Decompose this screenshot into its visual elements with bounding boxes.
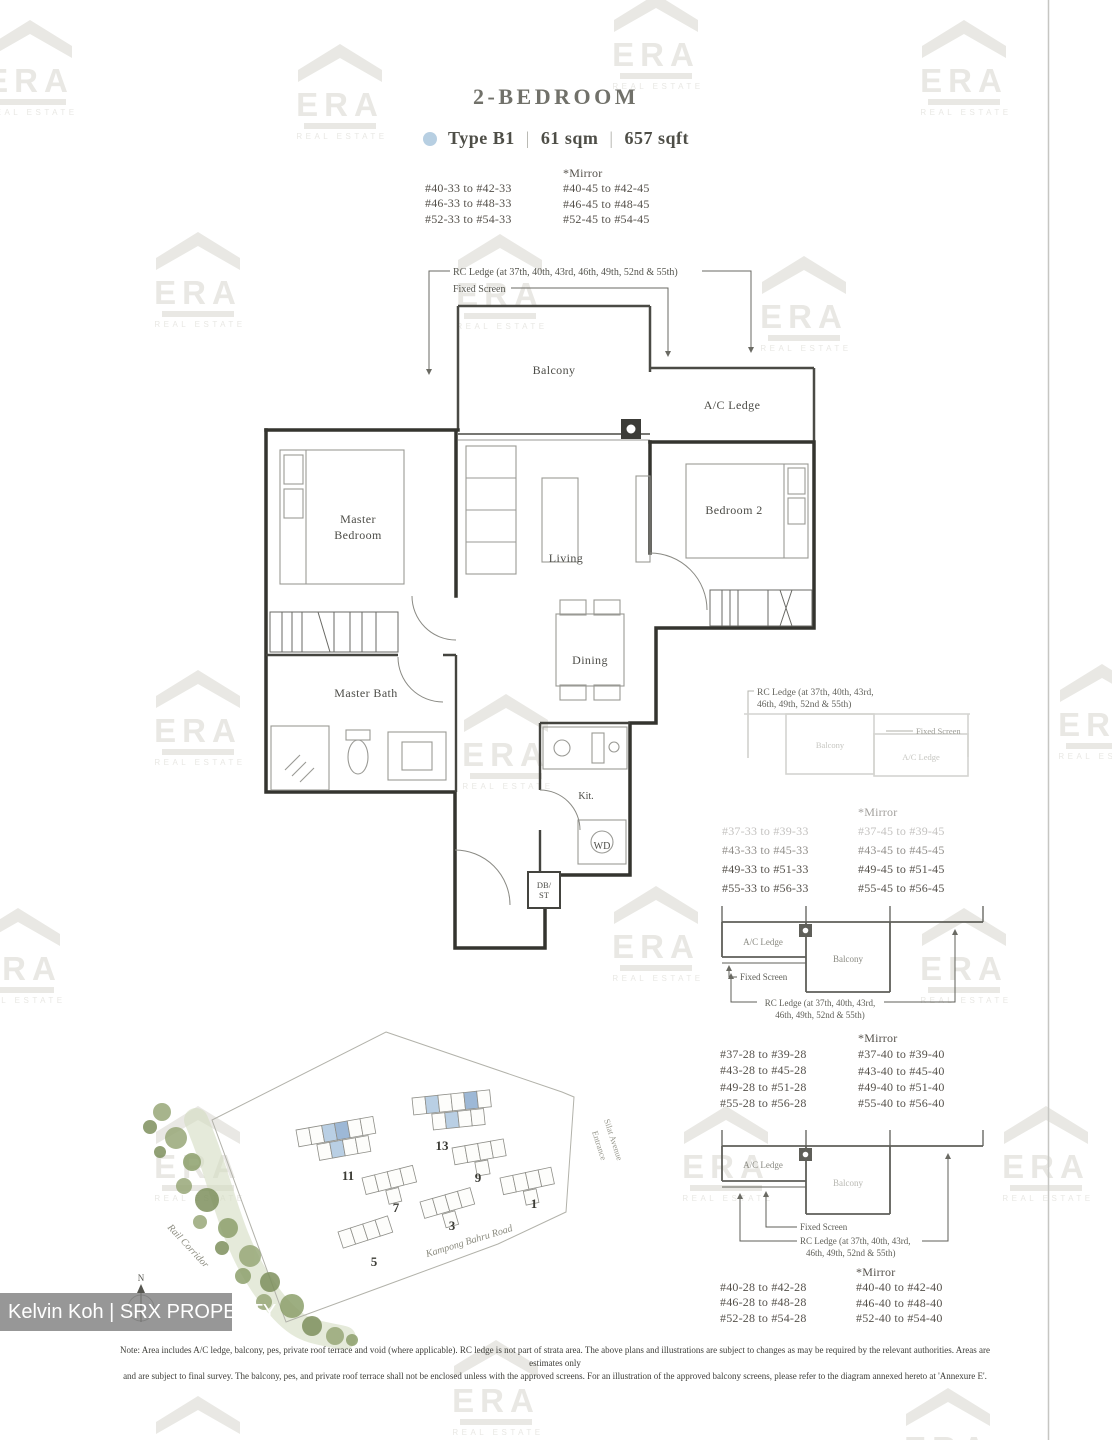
unit-list-2-right: *Mirror #37-45 to #39-45 #43-45 to #45-4… <box>858 803 945 898</box>
north-arrow-icon <box>137 1284 145 1293</box>
door-arcs <box>398 553 707 905</box>
unit-list-1-left: #40-33 to #42-33 #46-33 to #48-33 #52-33… <box>425 181 512 227</box>
living-label: Living <box>549 551 583 565</box>
unit-range: #52-45 to #54-45 <box>563 212 650 227</box>
floorplan-page: ERA REAL ESTATE <box>0 0 1112 1440</box>
diagA-balcony-label: Balcony <box>816 740 845 750</box>
diagC-fixed-screen-label: Fixed Screen <box>800 1222 848 1232</box>
rc-ledge-annotation: RC Ledge (at 37th, 40th, 43rd, 46th, 49t… <box>453 267 678 278</box>
diagB-rc-line2: 46th, 49th, 52nd & 55th) <box>775 1010 865 1020</box>
diagC-rc-line2: 46th, 49th, 52nd & 55th) <box>806 1248 896 1258</box>
era-watermarks <box>0 0 1112 1440</box>
building-cluster-1 <box>500 1167 558 1209</box>
unit-range: #49-40 to #51-40 <box>858 1079 945 1095</box>
unit-range: #49-28 to #51-28 <box>720 1079 807 1095</box>
unit-range: #49-45 to #51-45 <box>858 860 945 879</box>
unit-range: #52-40 to #54-40 <box>856 1311 943 1326</box>
mirror-header: *Mirror <box>858 1030 945 1046</box>
diagC-balcony-label: Balcony <box>833 1178 863 1188</box>
unit-type-row: Type B1 | 61 sqm | 657 sqft <box>56 128 1056 149</box>
bedroom2-wardrobe <box>710 590 812 626</box>
unit-list-3-left: #37-28 to #39-28 #43-28 to #45-28 #49-28… <box>720 1046 807 1111</box>
detail-diagram-top: RC Ledge (at 37th, 40th, 43rd, 46th, 49t… <box>744 687 970 776</box>
wd-label: WD <box>594 841 611 852</box>
unit-range: #40-33 to #42-33 <box>425 181 512 196</box>
separator: | <box>526 128 530 149</box>
master-bedroom-label-2: Bedroom <box>334 528 382 542</box>
page-graphics: ERA REAL ESTATE <box>0 0 1112 1440</box>
block-number-3: 3 <box>449 1218 456 1233</box>
unit-range: #37-28 to #39-28 <box>720 1046 807 1062</box>
unit-list-4-left: #40-28 to #42-28 #46-28 to #48-28 #52-28… <box>720 1280 807 1326</box>
unit-range: #43-40 to #45-40 <box>858 1063 945 1079</box>
building-cluster-13 <box>412 1090 493 1132</box>
diagA-rc-line1: RC Ledge (at 37th, 40th, 43rd, <box>757 687 874 698</box>
building-cluster-7 <box>362 1165 420 1209</box>
diagC-rc-line1: RC Ledge (at 37th, 40th, 43rd, <box>800 1236 910 1246</box>
unit-range: #43-45 to #45-45 <box>858 841 945 860</box>
type-b1-legend-dot <box>423 132 437 146</box>
master-bath-label: Master Bath <box>334 686 397 700</box>
dining-label: Dining <box>572 653 608 667</box>
bedroom2-label: Bedroom 2 <box>705 503 762 517</box>
area-sqm: 61 sqm <box>541 128 599 149</box>
ac-ledge-label: A/C Ledge <box>704 398 761 412</box>
fixed-screen-annotation: Fixed Screen <box>453 284 506 295</box>
diagB-rc-line1: RC Ledge (at 37th, 40th, 43rd, <box>765 998 875 1008</box>
footnote: Note: Area includes A/C ledge, balcony, … <box>118 1344 992 1383</box>
block-number-1: 1 <box>531 1196 538 1211</box>
page-title: 2-BEDROOM <box>56 84 1056 110</box>
block-number-13: 13 <box>436 1138 450 1153</box>
separator: | <box>609 128 613 149</box>
unit-range: #40-45 to #42-45 <box>563 181 650 196</box>
rail-corridor-label: Rail Corridor <box>164 1222 211 1271</box>
unit-list-3-right: *Mirror #37-40 to #39-40 #43-40 to #45-4… <box>858 1030 945 1111</box>
block-number-11: 11 <box>342 1168 354 1183</box>
unit-range: #43-33 to #45-33 <box>722 841 809 860</box>
master-wardrobe <box>270 612 398 652</box>
diagB-balcony-label: Balcony <box>833 954 863 964</box>
db-label-2: ST <box>539 890 550 900</box>
building-cluster-5 <box>338 1216 393 1248</box>
unit-range: #37-40 to #39-40 <box>858 1046 945 1062</box>
unit-range: #52-28 to #54-28 <box>720 1311 807 1326</box>
balcony-label: Balcony <box>533 363 576 377</box>
mirror-header: *Mirror <box>563 166 650 181</box>
unit-range: #46-40 to #48-40 <box>856 1296 943 1311</box>
mirror-header: *Mirror <box>856 1265 943 1280</box>
diagB-ac-ledge-label: A/C Ledge <box>743 937 783 947</box>
block-number-5: 5 <box>371 1254 378 1269</box>
unit-range: #46-33 to #48-33 <box>425 196 512 211</box>
diagA-fixed-screen-label: Fixed Screen <box>916 726 961 736</box>
diagC-ac-ledge-label: A/C Ledge <box>743 1160 783 1170</box>
db-label-1: DB/ <box>537 880 552 890</box>
diagA-rc-line2: 46th, 49th, 52nd & 55th) <box>757 699 851 710</box>
unit-list-2-left: #37-33 to #39-33 #43-33 to #45-33 #49-33… <box>722 822 809 898</box>
unit-range: #55-33 to #56-33 <box>722 879 809 898</box>
block-number-9: 9 <box>475 1170 482 1185</box>
unit-range: #40-40 to #42-40 <box>856 1280 943 1295</box>
unit-range: #37-33 to #39-33 <box>722 822 809 841</box>
kitchen-label: Kit. <box>578 791 593 802</box>
unit-range: #52-33 to #54-33 <box>425 212 512 227</box>
unit-list-4-right: *Mirror #40-40 to #42-40 #46-40 to #48-4… <box>856 1265 943 1326</box>
unit-range: #46-45 to #48-45 <box>563 197 650 212</box>
unit-range: #55-28 to #56-28 <box>720 1095 807 1111</box>
diagB-fixed-screen-label: Fixed Screen <box>740 972 788 982</box>
master-bedroom-label-1: Master <box>340 512 376 526</box>
unit-range: #55-40 to #56-40 <box>858 1095 945 1111</box>
entrance-label: Entrance <box>590 1130 609 1162</box>
block-number-7: 7 <box>393 1200 400 1215</box>
unit-range: #49-33 to #51-33 <box>722 860 809 879</box>
agent-watermark-bar: Kelvin Koh | SRX PROPERTY <box>0 1293 232 1331</box>
footnote-line-2: and are subject to final survey. The bal… <box>118 1370 992 1383</box>
unit-range: #55-45 to #56-45 <box>858 879 945 898</box>
unit-range: #43-28 to #45-28 <box>720 1062 807 1078</box>
mirror-header: *Mirror <box>858 803 945 822</box>
unit-range: #46-28 to #48-28 <box>720 1295 807 1310</box>
diagA-ac-ledge-label: A/C Ledge <box>902 752 940 762</box>
footnote-line-1: Note: Area includes A/C ledge, balcony, … <box>118 1344 992 1370</box>
area-sqft: 657 sqft <box>624 128 689 149</box>
compass-n-label: N <box>138 1273 145 1283</box>
unit-list-1-right: *Mirror #40-45 to #42-45 #46-45 to #48-4… <box>563 166 650 227</box>
unit-range: #40-28 to #42-28 <box>720 1280 807 1295</box>
type-label: Type B1 <box>448 128 515 149</box>
building-cluster-11 <box>296 1116 379 1163</box>
unit-range: #37-45 to #39-45 <box>858 822 945 841</box>
